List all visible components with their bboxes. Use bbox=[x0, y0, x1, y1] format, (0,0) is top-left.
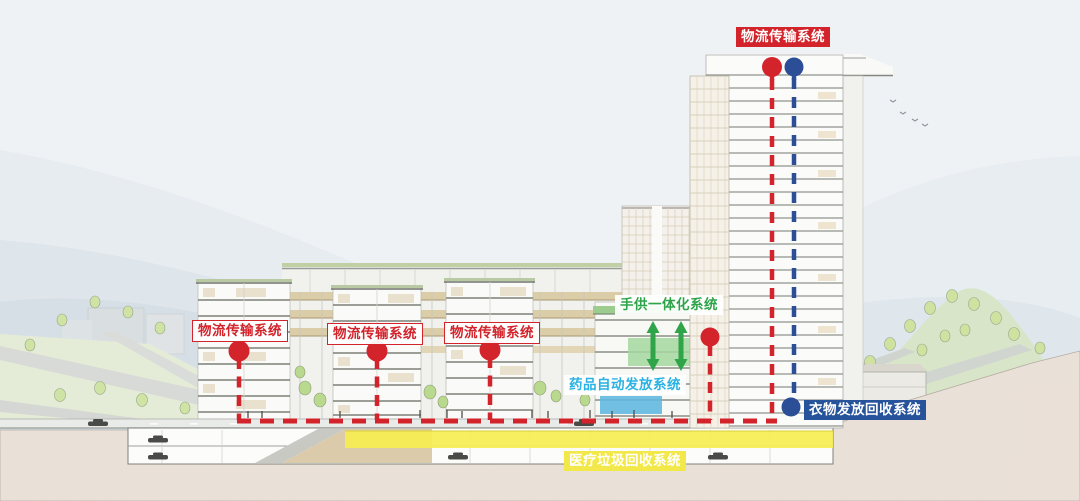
label-podium-logistics-3: 物流传输系统 bbox=[444, 322, 540, 344]
drug-dispensing-highlight-floor bbox=[600, 396, 662, 414]
clothing-blue-dot bbox=[782, 398, 801, 417]
tower-facade bbox=[690, 76, 729, 428]
label-clothing-recycling: 衣物发放回收系统 bbox=[804, 400, 926, 420]
label-medical-waste: 医疗垃圾回收系统 bbox=[564, 451, 686, 471]
label-hand-supply: 手供一体化系统 bbox=[615, 295, 723, 315]
label-drug-dispensing: 药品自动发放系统 bbox=[564, 375, 686, 395]
medical-waste-corridor bbox=[345, 431, 833, 448]
scene-illustration bbox=[0, 0, 1080, 501]
label-podium-logistics-1: 物流传输系统 bbox=[192, 320, 288, 342]
label-tower-logistics: 物流传输系统 bbox=[736, 27, 830, 47]
tower-building bbox=[690, 54, 893, 428]
hospital-logistics-section-diagram: 物流传输系统 物流传输系统 物流传输系统 物流传输系统 手供一体化系统 药品自动… bbox=[0, 0, 1080, 501]
label-podium-logistics-2: 物流传输系统 bbox=[327, 323, 423, 345]
tower-red-dot bbox=[762, 57, 782, 77]
tower-blue-dot bbox=[785, 58, 804, 77]
low-building-right bbox=[858, 364, 928, 402]
